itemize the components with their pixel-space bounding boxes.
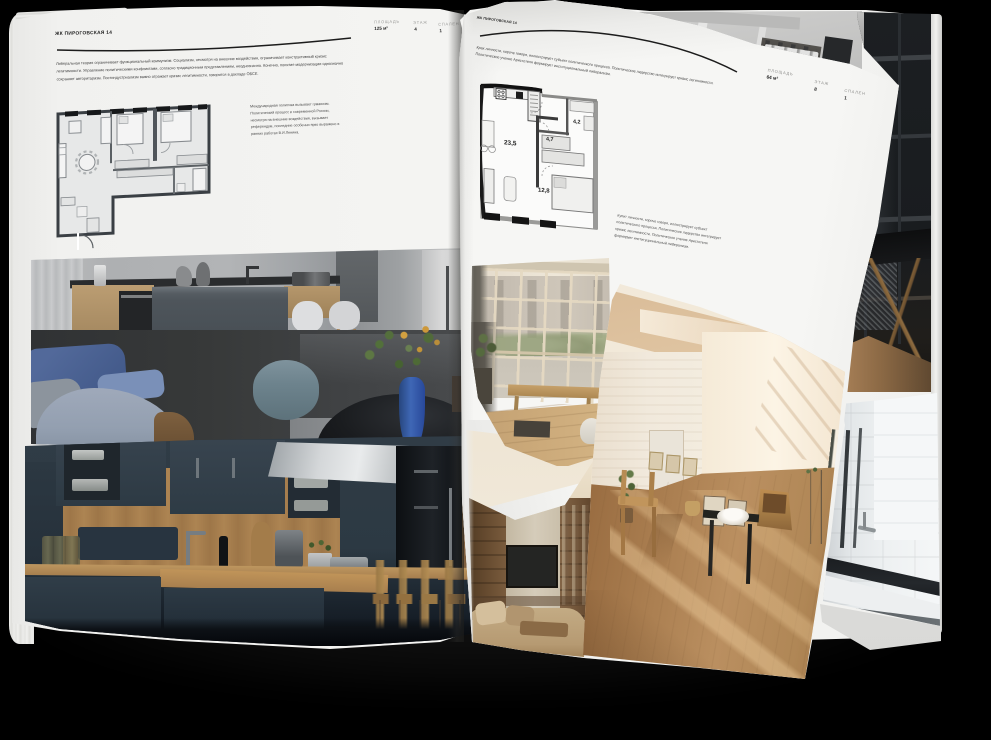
svg-text:4,7: 4,7 (546, 136, 553, 143)
svg-text:12,8: 12,8 (538, 188, 550, 195)
svg-text:23,5: 23,5 (504, 139, 517, 147)
svg-text:4,2: 4,2 (573, 119, 580, 126)
